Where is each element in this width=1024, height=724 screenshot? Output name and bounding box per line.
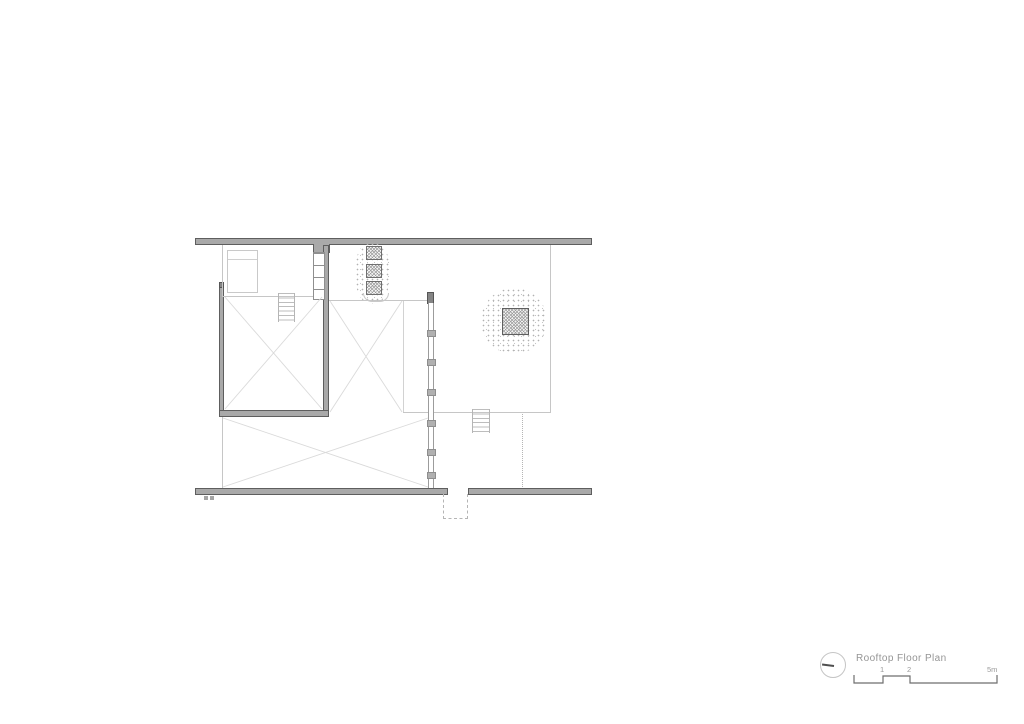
wall-tick (210, 496, 214, 500)
dashed-entry-path (443, 494, 468, 519)
mullion-tick (427, 330, 436, 337)
upper-room-bottom-line (222, 296, 323, 297)
bottom-wall-right (468, 488, 592, 495)
mullion-tick (427, 449, 436, 456)
scale-label-1: 1 (880, 665, 884, 674)
wall-tick (204, 496, 208, 500)
tree-planter (502, 308, 529, 335)
mullion-tick (427, 359, 436, 366)
mullion-tick (427, 420, 436, 427)
scale-bar: 1 2 5m (852, 665, 1002, 685)
roof-diagonal-markings (0, 0, 1024, 724)
void-left-wall (219, 282, 224, 417)
plan-title: Rooftop Floor Plan (856, 653, 947, 664)
drawing-sheet: Rooftop Floor Plan 1 2 5m (0, 0, 1024, 724)
shaft-ladder (313, 252, 325, 300)
skylight (227, 250, 258, 293)
north-indicator-icon (820, 652, 846, 678)
mullion-tick (427, 472, 436, 479)
bearing-line (822, 664, 834, 667)
scale-label-5m: 5m (987, 665, 997, 674)
bottom-wall-left (195, 488, 448, 495)
top-wall (195, 238, 592, 245)
planter-box (366, 264, 382, 278)
walkway-strip-line (403, 301, 404, 413)
upper-room-left-line (222, 245, 223, 297)
planter-box (366, 246, 382, 260)
void-bottom-wall (219, 410, 329, 417)
mullion-tick (427, 389, 436, 396)
scale-bar-graphic (852, 674, 1002, 685)
upper-stair (278, 293, 295, 322)
lower-deck-left-line (222, 417, 223, 488)
skylight-division-line (228, 259, 257, 260)
terrace-edge-vertical (550, 245, 551, 413)
scale-label-2: 2 (907, 665, 911, 674)
dashed-projection-line (522, 414, 523, 487)
terrace-stair (472, 409, 490, 433)
